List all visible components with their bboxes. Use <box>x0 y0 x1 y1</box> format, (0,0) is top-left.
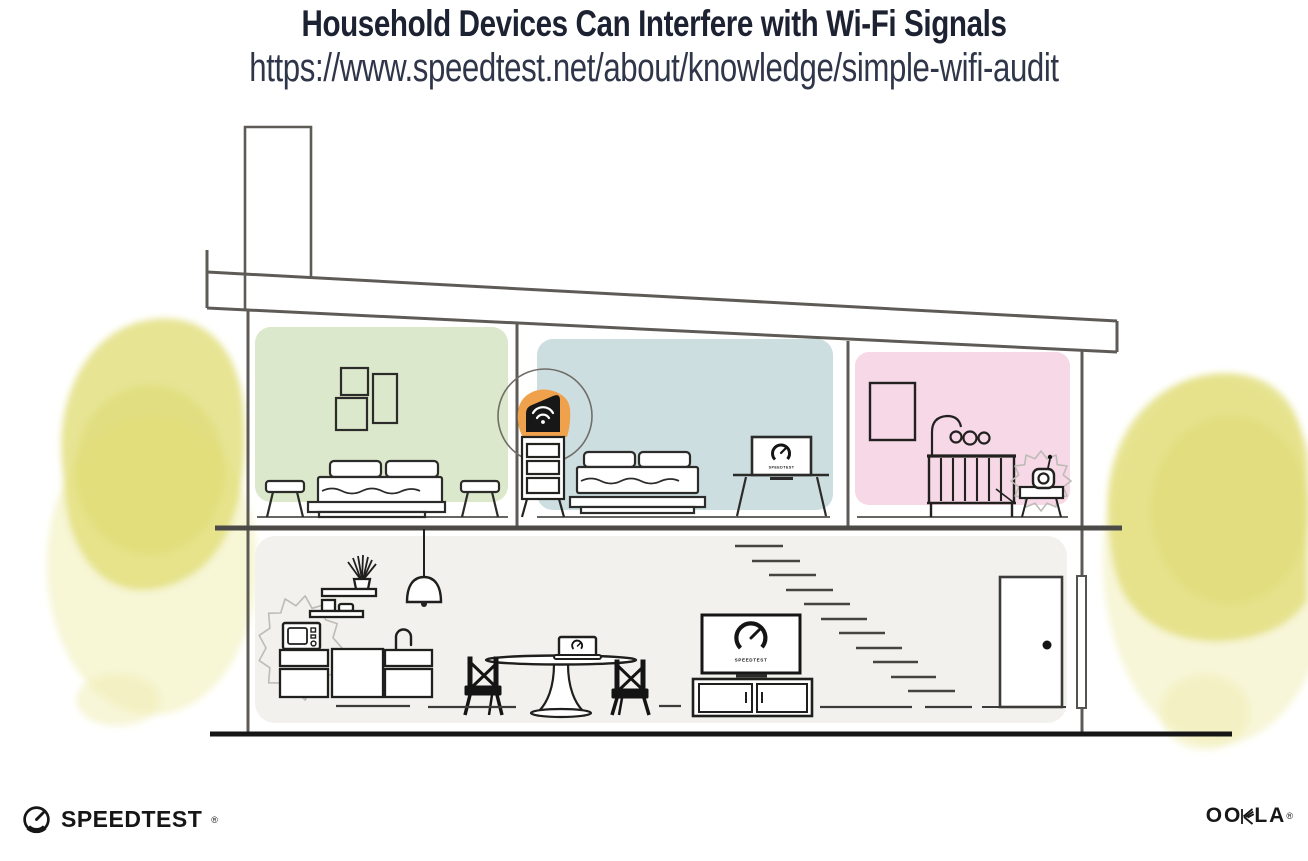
wall-shelf <box>322 589 376 596</box>
ookla-trademark: ® <box>1286 811 1293 821</box>
house-cross-section-illustration: SPEEDTEST <box>0 0 1308 861</box>
bedroom-tv-label: SPEEDTEST <box>769 466 795 470</box>
shelf-leg <box>522 499 527 517</box>
foliage-wash <box>76 674 160 726</box>
foliage-core <box>1150 415 1308 605</box>
front-door <box>1000 577 1062 707</box>
foliage-left-tree <box>47 319 257 726</box>
chimney <box>245 127 311 310</box>
chair-seat <box>612 689 648 698</box>
counter-drawer <box>385 650 432 666</box>
monitor-antenna-tip <box>1048 455 1052 459</box>
microwave-window <box>288 628 307 644</box>
living-room-tv-label: SPEEDTEST <box>735 658 768 663</box>
pillow <box>639 452 690 467</box>
stool-top <box>266 481 304 492</box>
lamp-shade <box>407 577 441 602</box>
living-room-tv-group: SPEEDTEST <box>693 615 812 716</box>
foliage-trunk-wash <box>1160 674 1250 750</box>
bed-plinth <box>319 512 425 517</box>
pillow <box>330 461 381 477</box>
bed-plinth <box>581 507 694 513</box>
foliage-core <box>75 385 225 555</box>
console-door <box>699 684 752 712</box>
shelf-drawer <box>527 478 559 493</box>
monitor-body <box>1033 469 1054 488</box>
console-door <box>757 684 807 712</box>
ookla-wordmark-first: OO <box>1206 804 1243 828</box>
pillow <box>584 452 635 467</box>
chair-seat <box>465 686 501 695</box>
lamp-bulb <box>421 601 427 607</box>
foliage-right-tree <box>1103 373 1308 750</box>
infographic-page: { "header": { "title": "Household Device… <box>0 0 1308 861</box>
downspout <box>1077 576 1086 708</box>
bed-base <box>308 502 445 512</box>
door-knob <box>1043 641 1052 650</box>
speedtest-wordmark: SPEEDTEST <box>61 806 202 833</box>
speedtest-trademark: ® <box>211 815 218 825</box>
plant-pot <box>354 579 370 589</box>
laptop <box>554 637 601 659</box>
wifi-router-group <box>518 390 570 517</box>
bed-base <box>570 497 705 507</box>
microwave-button <box>311 635 316 638</box>
media-console <box>693 679 812 716</box>
stool-top <box>461 481 499 492</box>
tv-stand-bar <box>770 477 793 480</box>
ookla-logo: OO LA® <box>1206 804 1293 828</box>
counter-cabinet <box>280 669 328 697</box>
pillow <box>386 461 438 477</box>
wall-shelf <box>310 611 363 617</box>
ookla-k-icon <box>1240 808 1255 825</box>
counter-cabinet <box>385 669 432 697</box>
speedtest-gauge-icon <box>21 804 52 835</box>
counter-cabinet <box>332 649 383 697</box>
speedtest-logo: SPEEDTEST® <box>21 804 218 835</box>
counter-drawer <box>280 650 328 666</box>
ookla-wordmark-last: LA <box>1254 804 1286 828</box>
bedroom-tv: SPEEDTEST <box>752 437 811 480</box>
table-base <box>531 709 591 717</box>
kitchen-counters <box>280 649 432 697</box>
cup <box>322 600 335 611</box>
shelf-drawer <box>527 461 559 474</box>
microwave <box>283 623 320 649</box>
tv-stand-bar <box>736 674 767 678</box>
laptop-base <box>554 655 601 659</box>
bedroom-left-wall-panel <box>255 327 508 502</box>
microwave-button <box>311 628 316 632</box>
shelf-drawer <box>527 444 559 457</box>
